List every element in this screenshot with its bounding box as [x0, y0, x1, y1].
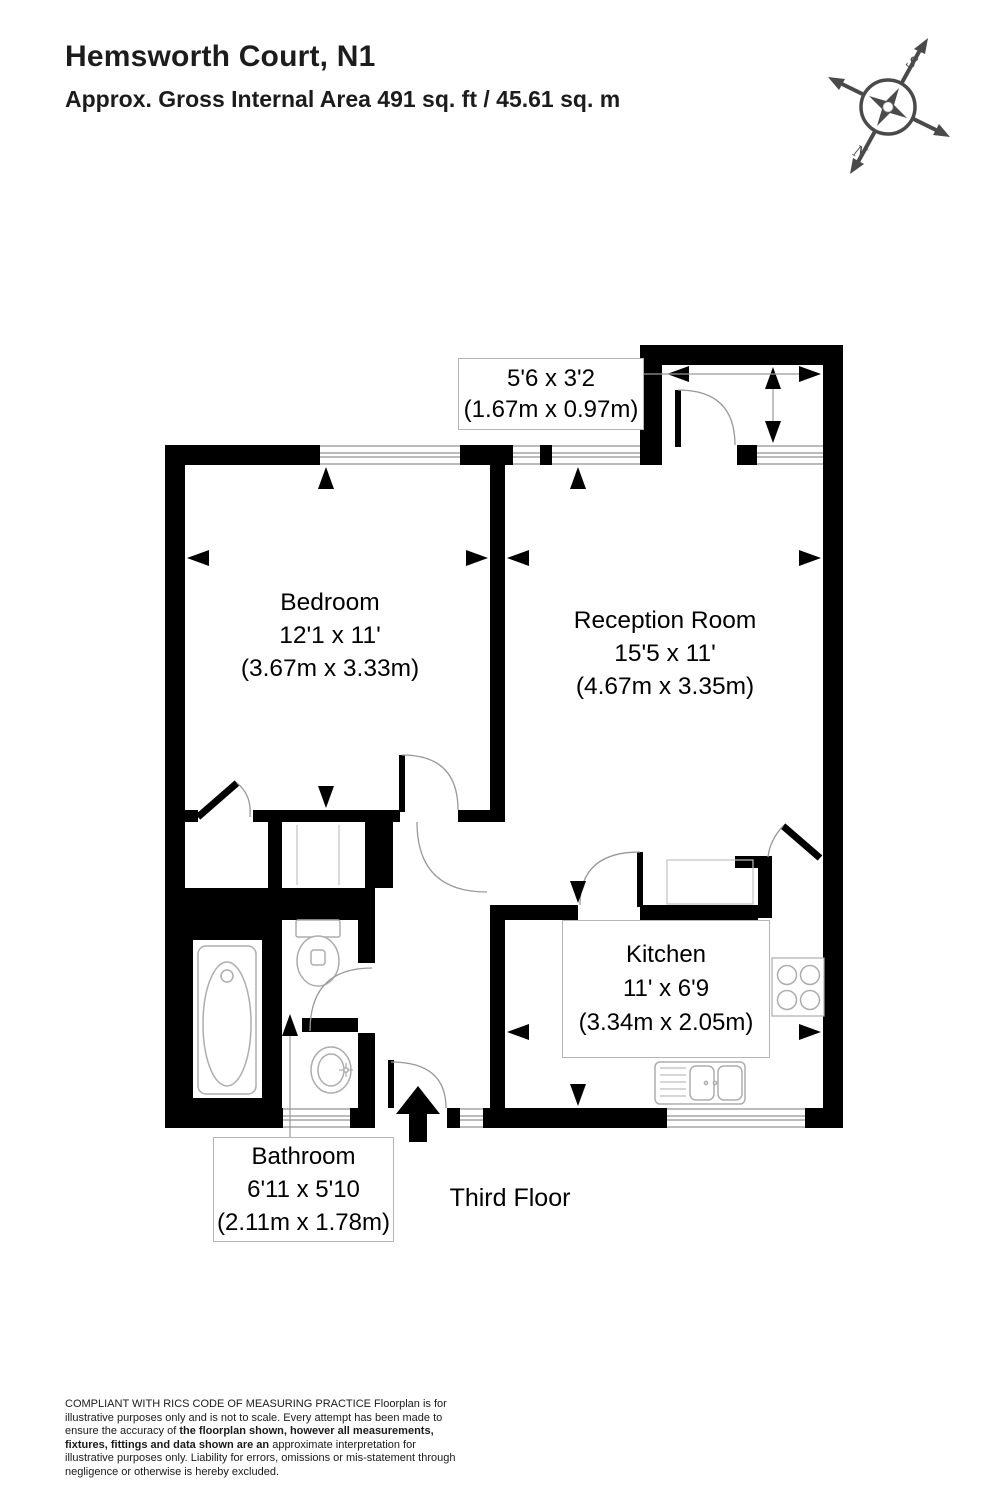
compass-icon: S N [828, 38, 950, 174]
bedroom-height-arrow-top [318, 467, 334, 489]
hall-closet-door [399, 755, 458, 812]
reception-width-arrow-left [507, 550, 529, 566]
bathtub [198, 946, 256, 1094]
kitchen-dimensions-imperial: 11' x 6'9 [623, 972, 709, 1006]
bathroom-dimensions-metric: (2.11m x 1.78m) [217, 1206, 390, 1239]
kitchen-width-arrow-left [507, 1024, 529, 1040]
hall-reception-opening [417, 822, 487, 892]
reception-window-left [513, 446, 540, 464]
entrance-arrow [396, 1086, 440, 1142]
balcony-width-arrow-right [799, 366, 821, 382]
reception-name: Reception Room [535, 604, 795, 637]
bedroom-name: Bedroom [210, 586, 450, 619]
hall-window [460, 1109, 483, 1127]
reception-height-arrow-top [570, 467, 586, 489]
bathroom-height-arrow [282, 1014, 298, 1036]
kitchen-height-arrow-bottom [570, 1084, 586, 1106]
wash-basin [311, 1047, 353, 1093]
balcony-height-arrow-top [765, 367, 781, 389]
floor-label: Third Floor [435, 1184, 585, 1213]
balcony-dimensions-imperial: 5'6 x 3'2 [507, 363, 595, 394]
kitchen-sink [655, 1062, 745, 1104]
floorplan-sheet: Hemsworth Court, N1 Approx. Gross Intern… [0, 0, 1000, 1500]
balcony-height-arrow-bottom [765, 421, 781, 443]
bedroom-height-arrow-bottom [318, 786, 334, 808]
bedroom-label: Bedroom 12'1 x 11' (3.67m x 3.33m) [210, 586, 450, 685]
bedroom-door [198, 783, 250, 817]
bedroom-width-arrow-right [466, 550, 488, 566]
reception-label: Reception Room 15'5 x 11' (4.67m x 3.35m… [535, 604, 795, 703]
balcony-door [675, 390, 735, 447]
kitchen-name: Kitchen [626, 938, 706, 972]
kitchen-window [667, 1109, 805, 1127]
kitchen-dimensions-metric: (3.34m x 2.05m) [579, 1006, 754, 1040]
balcony-dimensions-metric: (1.67m x 0.97m) [464, 394, 639, 425]
disclaimer-text: COMPLIANT WITH RICS CODE OF MEASURING PR… [65, 1398, 459, 1480]
bedroom-width-arrow-left [187, 550, 209, 566]
closet-lines [297, 825, 339, 885]
reception-height-arrow-bottom [570, 881, 586, 903]
kitchen-label: Kitchen 11' x 6'9 (3.34m x 2.05m) [562, 920, 770, 1058]
hob [772, 958, 824, 1016]
reception-window-right [552, 446, 640, 464]
compass-south-label: S [903, 51, 920, 73]
reception-kitchen-door [768, 826, 820, 858]
bedroom-window [320, 446, 460, 464]
reception-dimensions-metric: (4.67m x 3.35m) [535, 670, 795, 703]
balcony-window [757, 446, 823, 464]
bedroom-dimensions-imperial: 12'1 x 11' [210, 619, 450, 652]
bathroom-label: Bathroom 6'11 x 5'10 (2.11m x 1.78m) [213, 1137, 394, 1242]
bedroom-dimensions-metric: (3.67m x 3.33m) [210, 652, 450, 685]
floorplan-drawing: S N [0, 0, 1000, 1500]
bathroom-window [283, 1109, 350, 1127]
balcony-label: 5'6 x 3'2 (1.67m x 0.97m) [458, 358, 644, 430]
kitchen-width-arrow-right [799, 1024, 821, 1040]
reception-door [580, 852, 643, 907]
reception-dimensions-imperial: 15'5 x 11' [535, 637, 795, 670]
bathroom-name: Bathroom [251, 1140, 355, 1173]
bathroom-dimensions-imperial: 6'11 x 5'10 [247, 1173, 360, 1206]
toilet [296, 920, 340, 986]
reception-width-arrow-right [799, 550, 821, 566]
